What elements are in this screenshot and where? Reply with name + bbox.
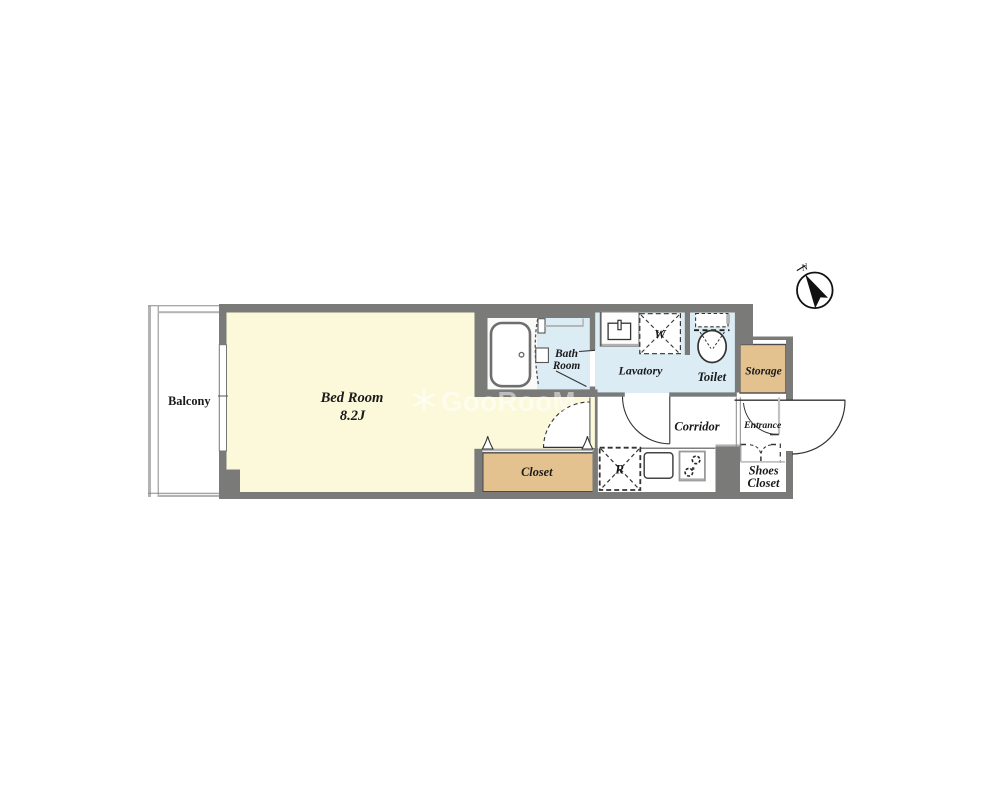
svg-text:Closet: Closet [748, 476, 780, 490]
svg-text:R: R [614, 462, 624, 477]
svg-text:Bath: Bath [554, 348, 578, 360]
svg-text:GooRooM: GooRooM [441, 386, 576, 417]
svg-text:Bed Room: Bed Room [320, 390, 384, 406]
svg-text:Balcony: Balcony [168, 394, 211, 408]
svg-text:Corridor: Corridor [674, 419, 719, 433]
svg-text:Closet: Closet [521, 465, 553, 479]
svg-text:Storage: Storage [745, 366, 781, 378]
svg-text:Room: Room [552, 360, 581, 372]
svg-text:8.2J: 8.2J [340, 408, 366, 424]
svg-text:Toilet: Toilet [697, 370, 726, 384]
svg-text:Lavatory: Lavatory [618, 364, 664, 378]
svg-text:W: W [654, 328, 667, 342]
svg-text:Entrance: Entrance [743, 420, 782, 431]
